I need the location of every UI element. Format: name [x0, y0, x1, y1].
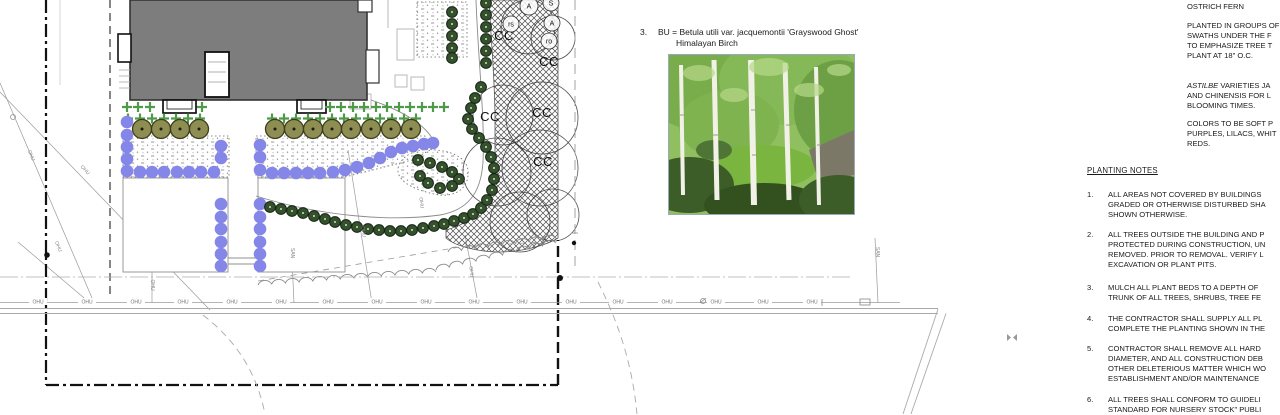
note-number: 2. [1087, 230, 1093, 239]
legend-common-name: Himalayan Birch [676, 38, 738, 48]
plant-description-paragraph: ASTILBE VARIETIES JAAND CHINENSIS FOR LB… [1187, 81, 1271, 111]
svg-text:OHU: OHU [53, 240, 63, 253]
svg-text:OHU: OHU [417, 197, 424, 209]
svg-text:SAN: SAN [874, 247, 880, 258]
svg-text:OHU: OHU [275, 300, 287, 306]
legend-item-number: 3. [640, 27, 647, 37]
planting-notes-heading: PLANTING NOTES [1087, 166, 1158, 175]
svg-text:OHU: OHU [710, 300, 722, 306]
note-item: 6.ALL TREES SHALL CONFORM TO GUIDELISTAN… [1087, 395, 1280, 415]
svg-text:CC: CC [533, 154, 553, 169]
svg-text:OHU: OHU [32, 300, 44, 306]
svg-text:CC: CC [539, 54, 559, 69]
svg-text:OHU: OHU [757, 300, 769, 306]
chimney [366, 50, 379, 83]
svg-text:OHU: OHU [612, 300, 624, 306]
planting-plan-sheet: { "colors": { "purple": "#8486e8", "oliv… [0, 0, 1280, 414]
legend-botanical-name: BU = Betula utili var. jacquemontii 'Gra… [658, 27, 859, 37]
note-text: MULCH ALL PLANT BEDS TO A DEPTH OFTRUNK … [1108, 283, 1280, 303]
note-item: 4.THE CONTRACTOR SHALL SUPPLY ALL PLCOMP… [1087, 314, 1280, 334]
building-stair-notch [205, 52, 229, 97]
svg-text:OHU: OHU [359, 226, 367, 238]
section-marker [1007, 334, 1017, 341]
bay-window [118, 34, 131, 62]
svg-text:OHU: OHU [371, 300, 383, 306]
svg-text:OHU: OHU [79, 164, 91, 176]
svg-text:OHU: OHU [468, 300, 480, 306]
svg-text:OHU: OHU [149, 279, 155, 291]
building [118, 0, 379, 113]
note-number: 1. [1087, 190, 1093, 199]
svg-text:S: S [549, 1, 554, 8]
overhead-utility-labels: OHUOHUOHUOHUOHUOHUOHUOHUOHUOHUOHUOHUOHUO… [29, 298, 821, 306]
porch-left [163, 100, 196, 113]
svg-text:OHU: OHU [130, 300, 142, 306]
svg-text:ro: ro [546, 39, 552, 46]
note-text: ALL TREES OUTSIDE THE BUILDING AND PPROT… [1108, 230, 1280, 270]
birch-tree-symbols [133, 120, 421, 139]
svg-text:OHU: OHU [81, 300, 93, 306]
birch-photo-illustration [669, 55, 854, 214]
plant-description-paragraph: COLORS TO BE SOFT PPURPLES, LILACS, WHIT… [1187, 119, 1276, 149]
svg-text:SAN: SAN [289, 248, 295, 259]
note-number: 3. [1087, 283, 1093, 292]
note-text: ALL TREES SHALL CONFORM TO GUIDELISTANDA… [1108, 395, 1280, 415]
svg-text:OHU: OHU [420, 300, 432, 306]
note-number: 5. [1087, 344, 1093, 353]
svg-text:CC: CC [532, 105, 552, 120]
note-item: 1.ALL AREAS NOT COVERED BY BUILDINGSGRAD… [1087, 190, 1280, 220]
note-text: CONTRACTOR SHALL REMOVE ALL HARDDIAMETER… [1108, 344, 1280, 384]
svg-text:OHU: OHU [26, 149, 36, 162]
note-text: ALL AREAS NOT COVERED BY BUILDINGSGRADED… [1108, 190, 1280, 220]
note-text: THE CONTRACTOR SHALL SUPPLY ALL PLCOMPLE… [1108, 314, 1280, 334]
stepper-pad [417, 2, 467, 57]
svg-text:OHU: OHU [322, 300, 334, 306]
lawn-panels [123, 178, 345, 272]
svg-text:CC: CC [480, 109, 500, 124]
plant-description-paragraph: PLANTED IN GROUPS OFSWATHS UNDER THE FTO… [1187, 21, 1279, 61]
svg-text:OHU: OHU [467, 266, 474, 278]
svg-text:A: A [527, 4, 532, 11]
svg-text:OHU: OHU [226, 300, 238, 306]
note-number: 4. [1087, 314, 1093, 323]
note-item: 2.ALL TREES OUTSIDE THE BUILDING AND PPR… [1087, 230, 1280, 270]
svg-text:OHU: OHU [516, 300, 528, 306]
svg-text:OHU: OHU [806, 300, 818, 306]
fern-heading: OSTRICH FERN [1187, 2, 1244, 11]
birch-reference-photo [668, 54, 855, 215]
note-item: 5.CONTRACTOR SHALL REMOVE ALL HARDDIAMET… [1087, 344, 1280, 384]
note-item: 3.MULCH ALL PLANT BEDS TO A DEPTH OFTRUN… [1087, 283, 1280, 303]
svg-text:OHU: OHU [565, 300, 577, 306]
note-number: 6. [1087, 395, 1093, 404]
svg-text:A: A [550, 21, 555, 28]
svg-text:rs: rs [508, 22, 514, 29]
svg-text:OHU: OHU [661, 300, 673, 306]
svg-text:OHU: OHU [177, 300, 189, 306]
